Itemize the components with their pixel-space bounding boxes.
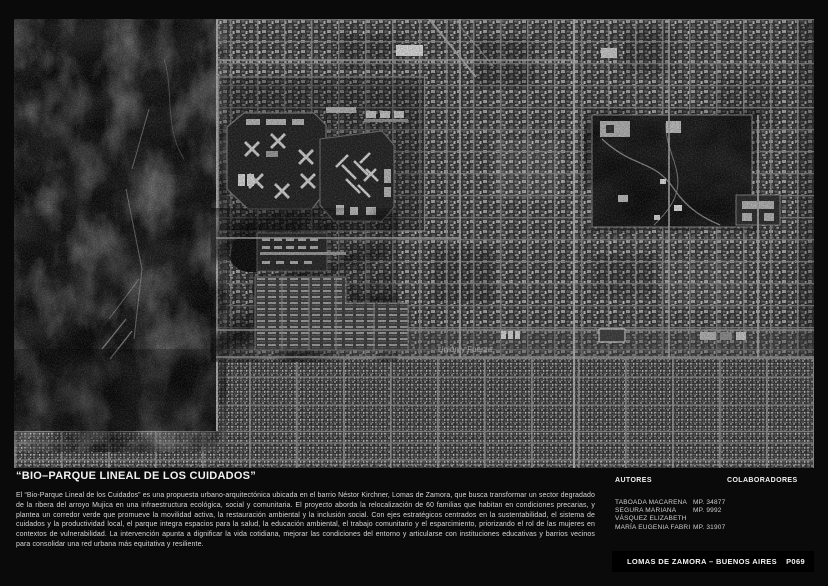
publication-page: Unión y Fuerza “BIO–PARQUE LINEAL DE LOS…	[0, 0, 828, 586]
footer-bar: LOMAS DE ZAMORA – BUENOS AIRES P069	[612, 551, 814, 572]
author-row: TABOADA MACARENA MP. 34877	[615, 499, 815, 507]
author-mp	[693, 515, 753, 523]
author-name: MARÍA EUGENIA FABRI	[615, 524, 693, 532]
author-mp: MP. 34877	[693, 499, 753, 507]
aerial-photo: Unión y Fuerza	[14, 19, 814, 468]
colaboradores-header: COLABORADORES	[727, 477, 798, 484]
footer-page-number: P069	[786, 557, 805, 566]
author-mp: MP. 9992	[693, 507, 753, 515]
author-mp: MP. 31907	[693, 524, 753, 532]
footer-location: LOMAS DE ZAMORA – BUENOS AIRES	[627, 557, 777, 566]
authors-list: TABOADA MACARENA MP. 34877 SEGURA MARIAN…	[615, 499, 815, 532]
author-name: TABOADA MACARENA	[615, 499, 693, 507]
aerial-photo-graphic: Unión y Fuerza	[14, 19, 814, 468]
project-title: “BIO–PARQUE LINEAL DE LOS CUIDADOS”	[16, 470, 256, 482]
author-row: MARÍA EUGENIA FABRI MP. 31907	[615, 524, 815, 532]
author-name: VÁSQUEZ ELIZABETH	[615, 515, 693, 523]
credits-section: AUTORES COLABORADORES TABOADA MACARENA M…	[615, 477, 815, 532]
project-description: El “Bio-Parque Lineal de los Cuidados” e…	[16, 491, 595, 550]
author-row: VÁSQUEZ ELIZABETH	[615, 515, 815, 523]
autores-header: AUTORES	[615, 477, 727, 484]
